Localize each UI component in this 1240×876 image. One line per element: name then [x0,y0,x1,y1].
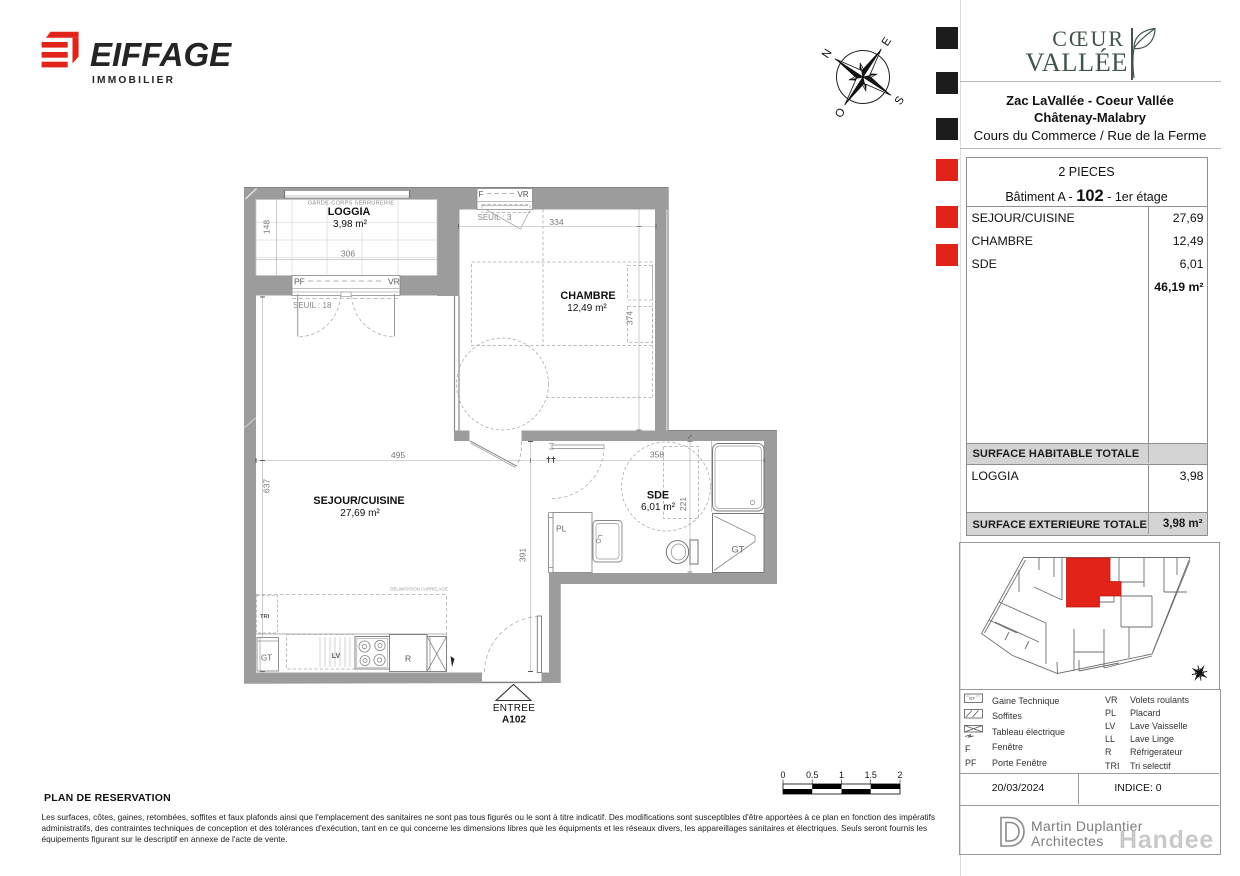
svg-text:27,69 m²: 27,69 m² [340,508,380,519]
svg-text:1.5: 1.5 [865,770,877,780]
svg-text:E: E [880,35,894,48]
svg-text:GT: GT [969,696,976,701]
svg-text:637: 637 [262,479,272,493]
svg-text:0.5: 0.5 [806,770,818,780]
svg-text:S: S [893,94,907,107]
svg-text:SEUIL : 18: SEUIL : 18 [293,301,332,310]
svg-text:VR: VR [518,190,529,199]
svg-text:GT: GT [731,545,744,556]
svg-text:334: 334 [549,217,563,227]
svg-text:F: F [479,190,484,199]
svg-text:ENTREE: ENTREE [493,703,535,714]
svg-text:A102: A102 [502,715,526,726]
svg-text:1: 1 [839,770,844,780]
svg-text:374: 374 [625,311,635,325]
svg-text:148: 148 [262,220,272,234]
svg-text:CHAMBRE: CHAMBRE [560,290,615,302]
svg-text:SEJOUR/CUISINE: SEJOUR/CUISINE [313,495,404,507]
svg-text:TRI: TRI [260,614,270,620]
svg-text:LV: LV [332,653,341,660]
svg-text:12,49 m²: 12,49 m² [567,303,607,314]
svg-text:2: 2 [898,770,903,780]
svg-text:PL: PL [556,524,567,534]
svg-text:6,01 m²: 6,01 m² [641,502,676,513]
svg-text:VR: VR [388,277,400,287]
svg-text:SDE: SDE [647,490,669,502]
svg-text:R: R [405,654,411,664]
svg-text:221: 221 [678,497,688,511]
svg-text:3,98 m²: 3,98 m² [333,219,368,230]
svg-text:0: 0 [781,770,786,780]
svg-text:DELIMITATION CARRELAGE: DELIMITATION CARRELAGE [390,587,447,592]
svg-text:306: 306 [341,249,355,259]
svg-text:N: N [820,47,835,61]
svg-text:GT: GT [261,654,272,663]
svg-text:391: 391 [518,548,528,562]
svg-text:358: 358 [650,450,664,460]
svg-text:495: 495 [391,450,405,460]
svg-text:PF: PF [294,277,305,287]
svg-text:LOGGIA: LOGGIA [328,206,371,218]
svg-text:O: O [833,106,848,120]
